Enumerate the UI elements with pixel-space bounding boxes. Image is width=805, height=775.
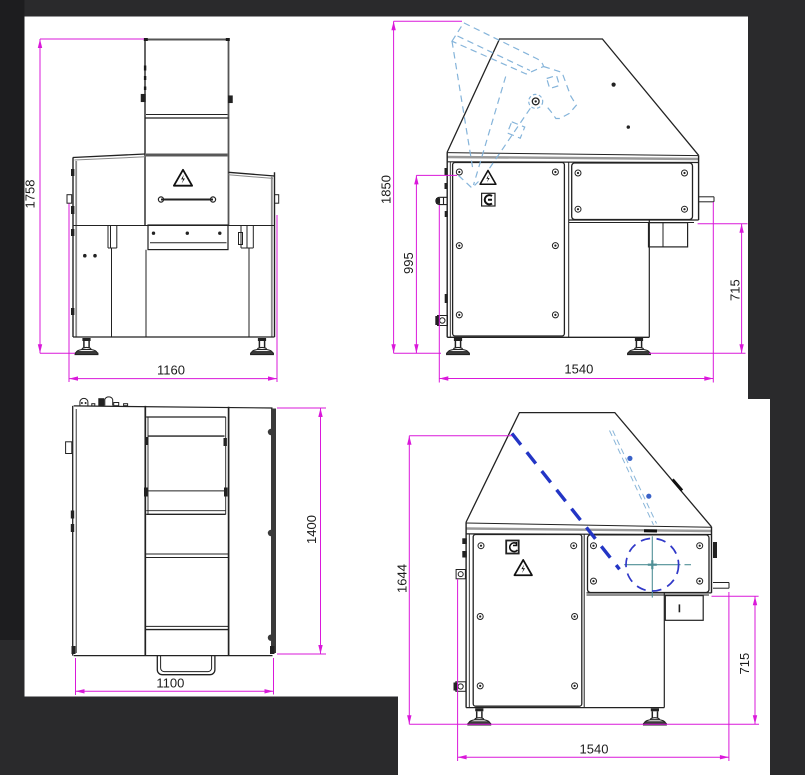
svg-text:1850: 1850 (379, 175, 394, 204)
svg-text:1540: 1540 (580, 742, 609, 757)
svg-text:1400: 1400 (304, 515, 319, 544)
svg-text:1540: 1540 (564, 362, 593, 377)
svg-text:1160: 1160 (157, 363, 185, 378)
svg-text:1758: 1758 (23, 180, 38, 209)
svg-text:1100: 1100 (156, 675, 184, 690)
svg-text:995: 995 (401, 252, 416, 274)
svg-text:715: 715 (728, 279, 743, 301)
svg-text:715: 715 (737, 653, 752, 675)
svg-text:1644: 1644 (395, 564, 410, 593)
